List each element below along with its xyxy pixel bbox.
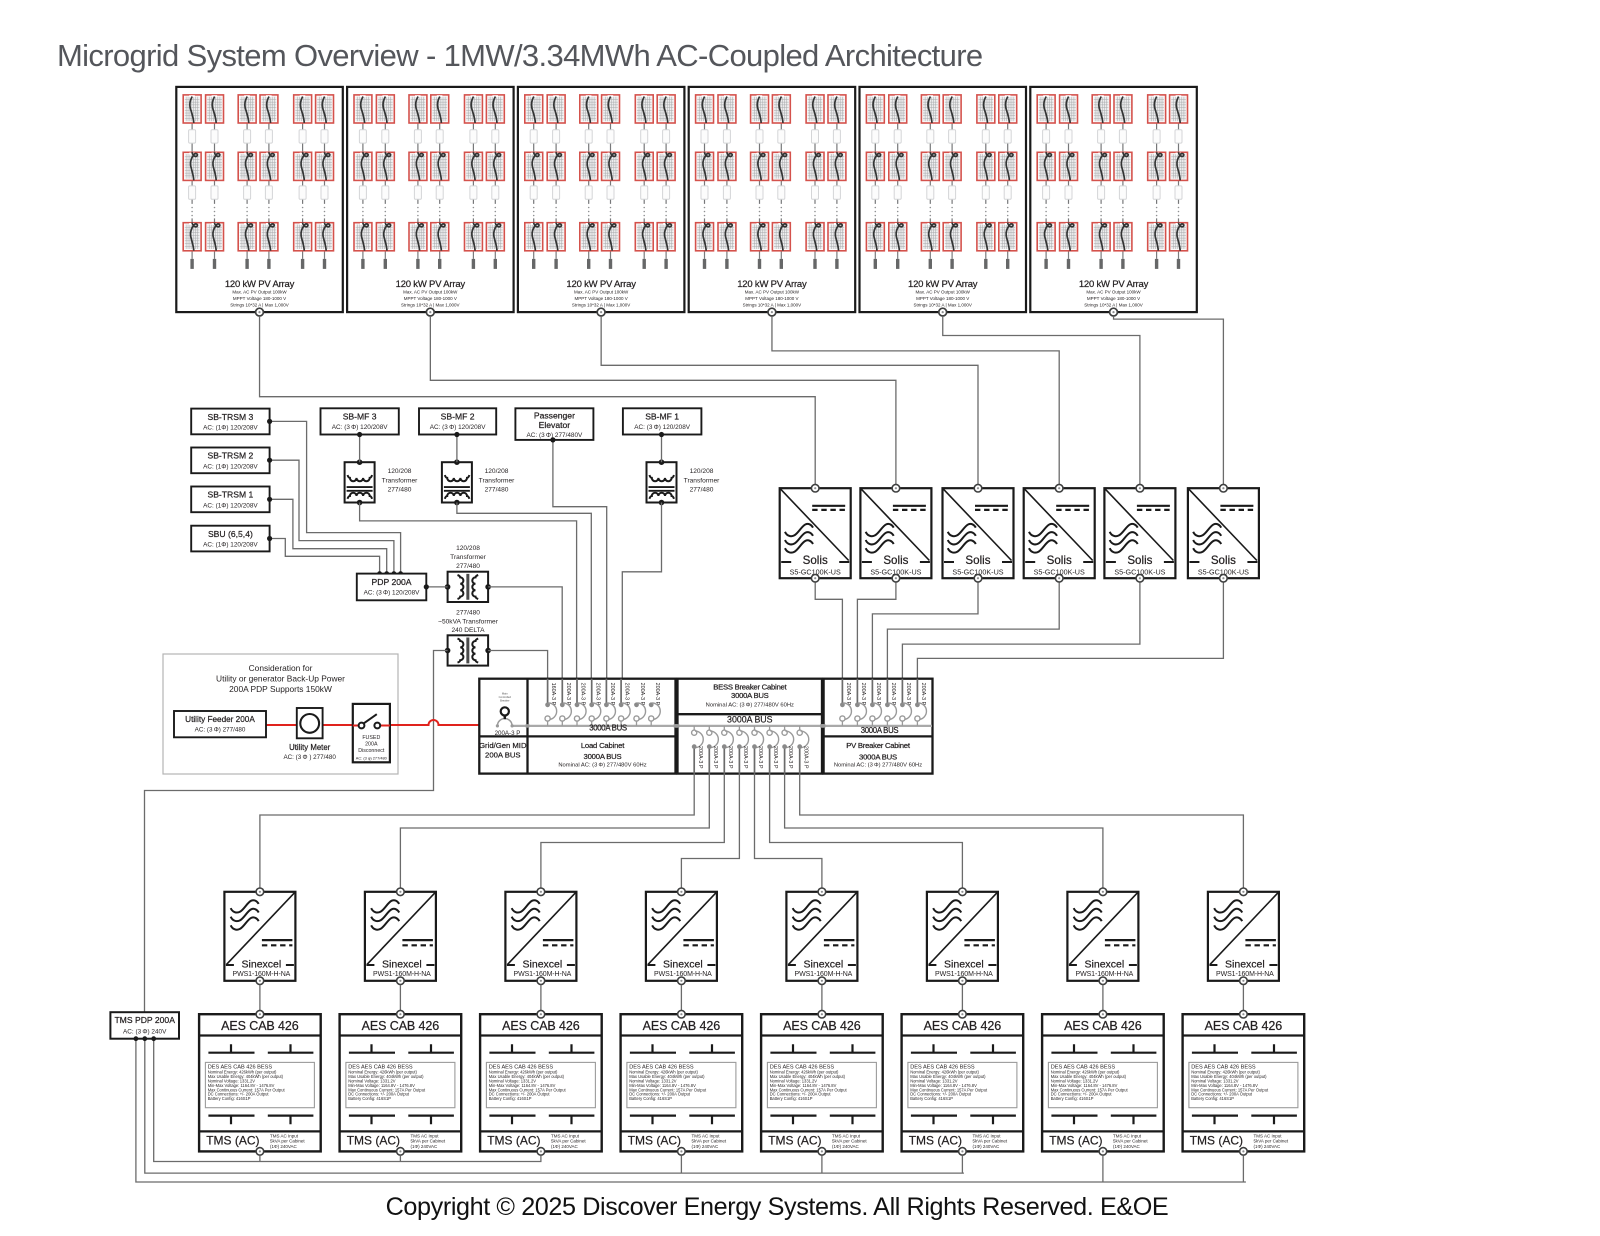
svg-text:200A-3 P: 200A-3 P (594, 683, 600, 706)
svg-text:Nominal AC: (3 Φ) 277/480V 60H: Nominal AC: (3 Φ) 277/480V 60Hz (706, 702, 794, 708)
svg-text:Nominal AC: (3 Φ) 277/480V 60H: Nominal AC: (3 Φ) 277/480V 60Hz (558, 763, 646, 769)
svg-text:3000A BUS: 3000A BUS (584, 752, 622, 761)
svg-text:120/208: 120/208 (456, 545, 480, 552)
svg-text:200A: 200A (365, 742, 378, 748)
svg-text:200A-3 P: 200A-3 P (845, 683, 851, 706)
svg-text:200A-3 P: 200A-3 P (580, 683, 586, 706)
svg-text:200A-3 P: 200A-3 P (742, 746, 748, 769)
svg-text:120/208: 120/208 (485, 468, 509, 475)
svg-text:200A-3 P: 200A-3 P (860, 683, 866, 706)
svg-text:Elevator: Elevator (539, 420, 571, 430)
svg-text:Disconnect: Disconnect (358, 748, 385, 754)
svg-text:240 DELTA: 240 DELTA (451, 627, 485, 634)
svg-text:SB-MF 1: SB-MF 1 (645, 412, 679, 422)
svg-text:3000A BUS: 3000A BUS (727, 715, 773, 725)
svg-text:AC: (1Φ) 120/208V: AC: (1Φ) 120/208V (203, 424, 258, 431)
svg-text:PDP 200A: PDP 200A (372, 577, 412, 587)
svg-text:Nominal AC: (3 Φ) 277/480V 60H: Nominal AC: (3 Φ) 277/480V 60Hz (834, 763, 922, 769)
svg-text:200A-3 P: 200A-3 P (875, 683, 881, 706)
svg-text:277/480: 277/480 (485, 487, 509, 494)
svg-text:AC: (3 Φ) 120/208V: AC: (3 Φ) 120/208V (634, 424, 690, 431)
svg-text:Transformer: Transformer (479, 477, 515, 484)
svg-text:AC: (1Φ) 120/208V: AC: (1Φ) 120/208V (203, 463, 258, 470)
svg-text:AC: (3 Φ) 120/208V: AC: (3 Φ) 120/208V (430, 424, 486, 431)
svg-text:AC: (3 Φ) 120/208V: AC: (3 Φ) 120/208V (332, 424, 388, 431)
svg-text:277/480: 277/480 (690, 487, 714, 494)
svg-text:3000A BUS: 3000A BUS (861, 726, 899, 735)
svg-text:SB-TRSM 1: SB-TRSM 1 (207, 490, 253, 500)
svg-text:200A-3 P: 200A-3 P (624, 683, 630, 706)
svg-text:Utility Feeder 200A: Utility Feeder 200A (185, 715, 255, 724)
svg-text:SB-MF 2: SB-MF 2 (441, 412, 475, 422)
svg-text:Load Cabinet: Load Cabinet (581, 741, 625, 750)
svg-text:200A-3 P: 200A-3 P (905, 683, 911, 706)
svg-text:277/480: 277/480 (388, 487, 412, 494)
svg-text:AC: (3 Φ ) 277/480: AC: (3 Φ ) 277/480 (283, 754, 336, 761)
svg-text:Main: Main (502, 692, 508, 696)
svg-text:Microgrid System Overview - 1M: Microgrid System Overview - 1MW/3.34MWh … (57, 38, 983, 73)
svg-text:200A-3 P: 200A-3 P (802, 746, 808, 769)
svg-text:Controlled: Controlled (499, 695, 512, 699)
svg-text:200A-3 P: 200A-3 P (727, 746, 733, 769)
svg-text:Consideration for: Consideration for (249, 663, 313, 673)
svg-text:SB-TRSM 2: SB-TRSM 2 (207, 451, 253, 461)
svg-text:200A-3 P: 200A-3 P (654, 683, 660, 706)
svg-text:AC: (3 Φ) 120/208V: AC: (3 Φ) 120/208V (364, 589, 420, 596)
svg-text:200A-3 P: 200A-3 P (757, 746, 763, 769)
svg-text:200A-3 P: 200A-3 P (787, 746, 793, 769)
svg-text:SB-TRSM 3: SB-TRSM 3 (207, 412, 253, 422)
svg-text:200A PDP Supports 150kW: 200A PDP Supports 150kW (229, 684, 332, 694)
svg-text:3000A BUS: 3000A BUS (589, 724, 627, 733)
svg-text:AC: (3 Φ) 277/480: AC: (3 Φ) 277/480 (195, 727, 246, 734)
svg-text:FUSED: FUSED (362, 735, 380, 741)
svg-text:AC: (3 Φ) 277/480V: AC: (3 Φ) 277/480V (527, 432, 583, 439)
svg-text:200A-3 P: 200A-3 P (697, 746, 703, 769)
svg-text:200A BUS: 200A BUS (485, 750, 520, 759)
svg-text:AC: (1Φ) 120/208V: AC: (1Φ) 120/208V (203, 542, 258, 549)
svg-text:200A-3 P: 200A-3 P (565, 683, 571, 706)
svg-text:200A-3 P: 200A-3 P (495, 730, 521, 737)
svg-text:AC: (3 φ) 277/480: AC: (3 φ) 277/480 (356, 756, 388, 761)
svg-text:PV Breaker Cabinet: PV Breaker Cabinet (846, 741, 911, 750)
svg-text:120/208: 120/208 (690, 468, 714, 475)
svg-text:200A-3 P: 200A-3 P (890, 683, 896, 706)
svg-text:TMS PDP 200A: TMS PDP 200A (114, 1015, 175, 1025)
svg-text:200A-3 P: 200A-3 P (609, 683, 615, 706)
svg-text:SBU (6,5,4): SBU (6,5,4) (208, 529, 253, 539)
svg-text:200A-3 P: 200A-3 P (920, 683, 926, 706)
svg-text:SB-MF 3: SB-MF 3 (343, 412, 377, 422)
svg-text:Transformer: Transformer (382, 477, 418, 484)
svg-text:Utility or generator Back-Up P: Utility or generator Back-Up Power (216, 674, 345, 684)
svg-text:Transformer: Transformer (450, 554, 486, 561)
svg-text:Copyright © 2025 Discover Ener: Copyright © 2025 Discover Energy Systems… (386, 1193, 1169, 1221)
svg-text:Transformer: Transformer (684, 477, 720, 484)
svg-text:277/480: 277/480 (456, 610, 480, 617)
svg-text:3000A BUS: 3000A BUS (859, 752, 897, 761)
svg-text:160A-3 P: 160A-3 P (550, 683, 556, 706)
svg-text:Breaker: Breaker (500, 699, 510, 703)
svg-text:3000A BUS: 3000A BUS (731, 691, 769, 700)
svg-text:120/208: 120/208 (388, 468, 412, 475)
svg-text:200A-3 P: 200A-3 P (639, 683, 645, 706)
svg-text:AC: (1Φ) 120/208V: AC: (1Φ) 120/208V (203, 502, 258, 509)
svg-text:Grid/Gen MID: Grid/Gen MID (479, 741, 527, 750)
svg-text:~50kVA Transformer: ~50kVA Transformer (438, 618, 499, 625)
svg-text:277/480: 277/480 (456, 563, 480, 570)
svg-text:Utility Meter: Utility Meter (289, 743, 331, 752)
svg-text:AC: (3 Φ) 240V: AC: (3 Φ) 240V (123, 1028, 167, 1035)
svg-text:200A-3 P: 200A-3 P (772, 746, 778, 769)
svg-text:200A-3 P: 200A-3 P (712, 746, 718, 769)
